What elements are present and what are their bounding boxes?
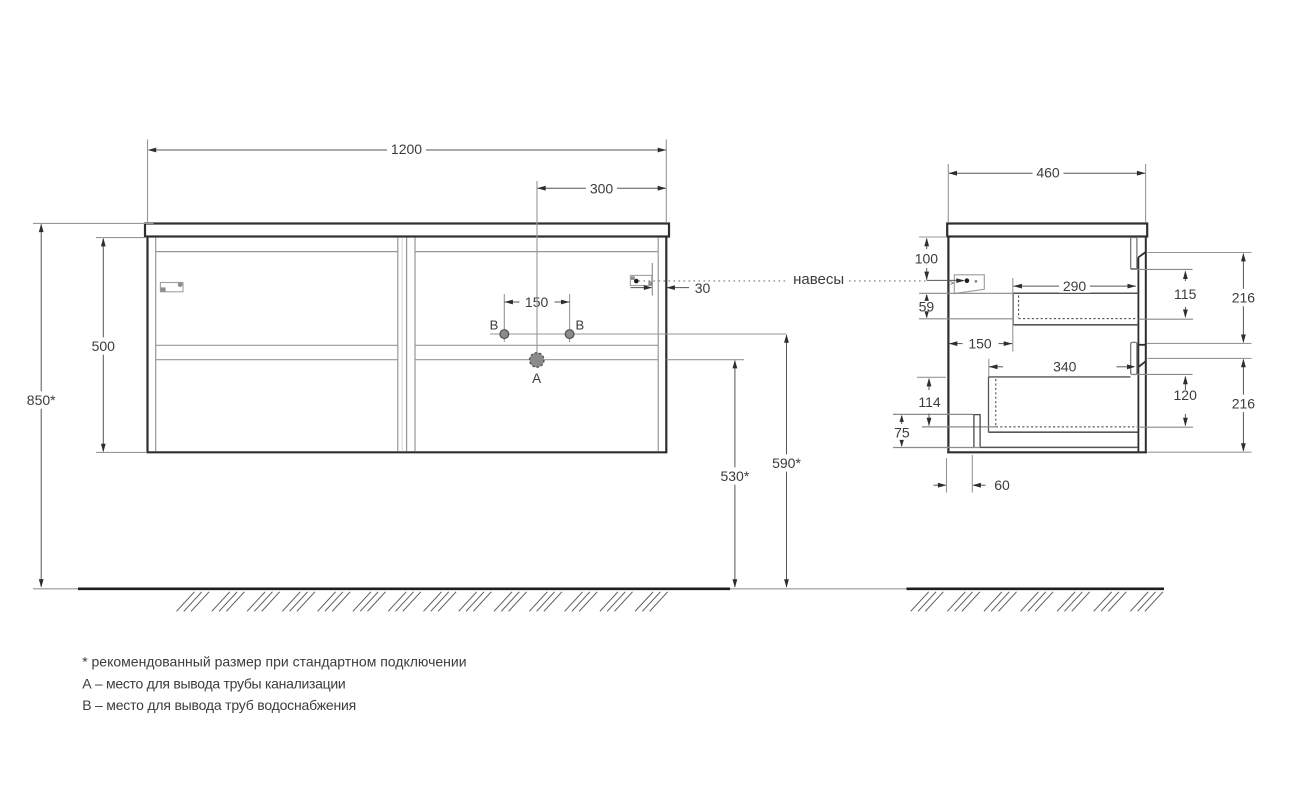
svg-text:850*: 850* <box>27 392 56 408</box>
svg-text:* рекомендованный размер при с: * рекомендованный размер при стандартном… <box>82 653 466 669</box>
svg-text:B: B <box>490 317 499 332</box>
svg-text:A: A <box>532 371 541 386</box>
svg-text:340: 340 <box>1053 358 1077 374</box>
svg-text:60: 60 <box>994 477 1010 493</box>
svg-text:120: 120 <box>1174 387 1198 403</box>
svg-text:1200: 1200 <box>391 141 422 157</box>
svg-text:300: 300 <box>590 180 614 196</box>
svg-text:115: 115 <box>1174 286 1197 302</box>
svg-text:навесы: навесы <box>793 271 844 288</box>
svg-text:500: 500 <box>92 338 116 354</box>
svg-text:59: 59 <box>919 298 935 314</box>
svg-text:30: 30 <box>695 280 711 296</box>
svg-text:216: 216 <box>1232 395 1256 411</box>
svg-text:А – место для вывода трубы кан: А – место для вывода трубы канализации <box>82 675 345 691</box>
svg-text:100: 100 <box>915 250 939 266</box>
svg-text:460: 460 <box>1036 165 1060 181</box>
svg-text:216: 216 <box>1232 290 1256 306</box>
svg-text:В – место для вывода труб водо: В – место для вывода труб водоснабжения <box>82 697 356 713</box>
svg-text:75: 75 <box>894 425 910 441</box>
svg-text:B: B <box>575 317 584 332</box>
svg-text:290: 290 <box>1063 278 1087 294</box>
svg-text:150: 150 <box>968 335 992 351</box>
svg-text:530*: 530* <box>720 468 749 484</box>
svg-text:114: 114 <box>918 394 941 410</box>
svg-text:590*: 590* <box>772 455 801 471</box>
